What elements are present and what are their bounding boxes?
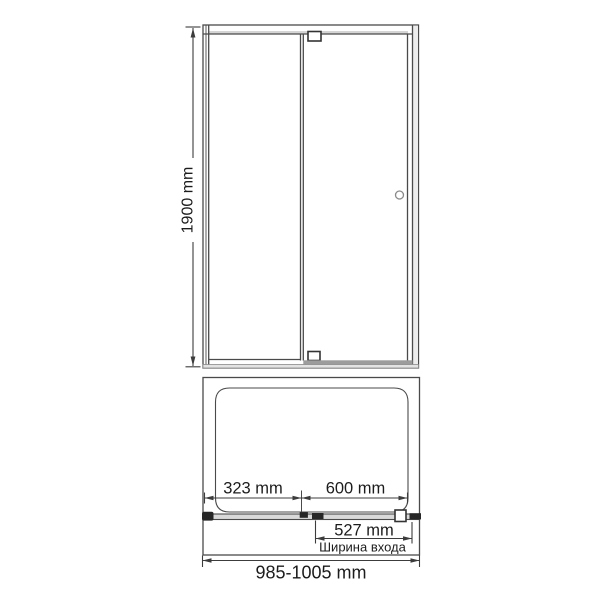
handle-bracket	[395, 510, 406, 522]
technical-drawing: 1900 mm 323 mm 600 mm 527 mm	[0, 0, 600, 600]
center-connector	[300, 512, 308, 518]
height-dim-arrow-up	[191, 28, 196, 38]
shower-door-front-view	[203, 25, 419, 368]
height-dimension: 1900 mm	[180, 27, 201, 367]
height-dimension-label: 1900 mm	[180, 167, 197, 234]
shower-door-dimension-diagram: 1900 mm 323 mm 600 mm 527 mm	[0, 0, 600, 600]
bottom-rail-band	[203, 365, 419, 369]
right-wall-profile-fill	[413, 26, 418, 368]
entrance-caption-label: Ширина входа	[319, 540, 406, 555]
door-edge-stop	[312, 513, 324, 519]
front-frame	[203, 25, 419, 368]
arrow-left-overall	[203, 558, 212, 563]
arrow-right-overall	[411, 558, 420, 563]
bottom-roller	[308, 352, 320, 361]
entrance-dimension-label: 527 mm	[334, 522, 394, 540]
top-roller	[308, 32, 321, 42]
bottom-track-dark	[303, 360, 412, 364]
overall-width-dimension: 985-1005 mm	[203, 556, 420, 583]
door-dimension-label: 600 mm	[326, 480, 386, 498]
door-track-bar	[203, 514, 420, 520]
fixed-panel-dimension-label: 323 mm	[223, 480, 283, 498]
door-handle	[396, 191, 404, 199]
height-dim-arrow-down	[191, 357, 196, 367]
overall-width-dimension-label: 985-1005 mm	[255, 563, 366, 583]
wall-bracket-right	[410, 513, 422, 519]
wall-bracket-left	[202, 512, 214, 521]
